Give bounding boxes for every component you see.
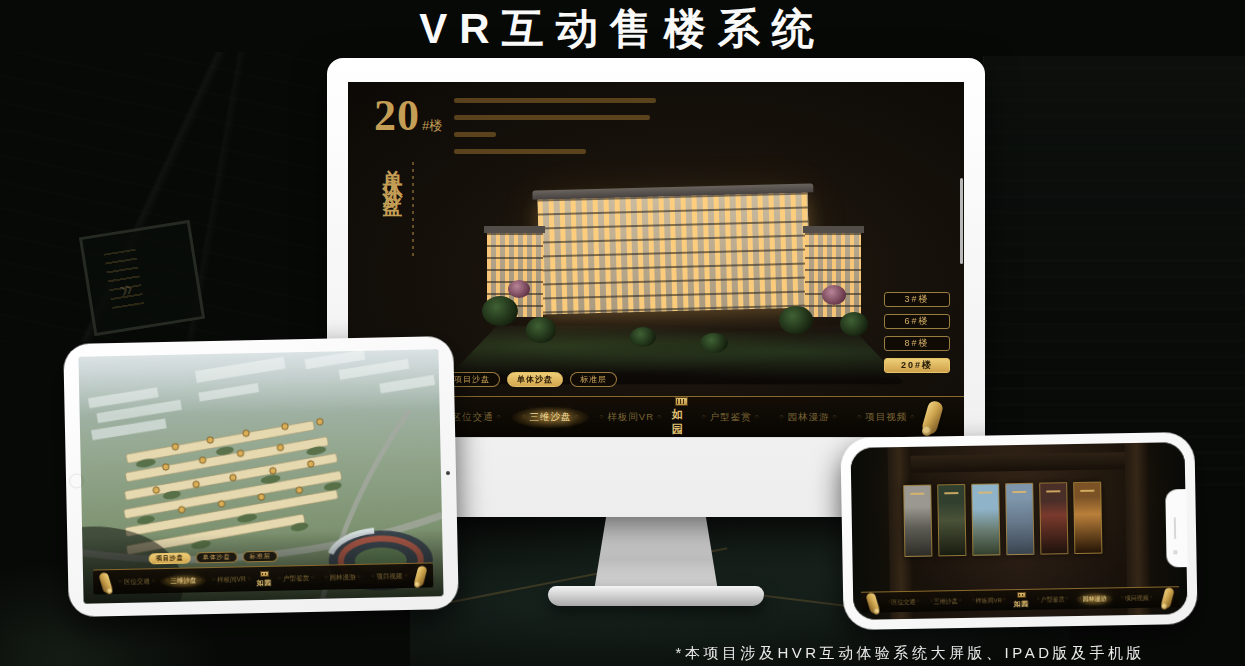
vertical-subtitle-decor: [412, 162, 414, 258]
brand-logo-text: 如园: [1013, 598, 1029, 608]
building-number: 20: [374, 91, 420, 140]
tree: [526, 317, 556, 343]
floor-button-20[interactable]: 20#楼: [884, 358, 950, 373]
seal-icon: [675, 397, 688, 406]
tree: [779, 306, 813, 334]
brand-logo-text: 如园: [256, 577, 272, 587]
tree: [700, 333, 728, 353]
phone-device: 区位交通 三维沙盘 样板间VR 如园 户型鉴赏 园林漫游 项目视频: [840, 432, 1197, 630]
ipad-screen: 项目沙盘 单体沙盘 标准层 区位交通 三维沙盘 样板间VR 如园 户型鉴赏 园林…: [78, 349, 443, 603]
nav-item-3d-sandbox[interactable]: 三维沙盘: [512, 407, 590, 428]
tab-standard-floor[interactable]: 标准层: [243, 551, 278, 563]
nav-item-model-room-vr[interactable]: 样板间VR: [207, 573, 256, 587]
nav-item-model-room-vr[interactable]: 样板间VR: [589, 407, 671, 428]
scroll-icon[interactable]: [868, 592, 878, 613]
monitor-stand-base: [548, 586, 764, 606]
footnote: *本项目涉及HVR互动体验系统大屏版、IPAD版及手机版: [676, 644, 1145, 663]
pano-thumbnail-strip: [903, 482, 1102, 557]
monitor-stand-neck: [594, 515, 718, 591]
phone-notch: [1165, 489, 1187, 567]
nav-item-floorplan[interactable]: 户型鉴赏: [692, 407, 770, 428]
nav-item-floorplan[interactable]: 户型鉴赏: [273, 571, 319, 585]
tab-single-sandbox[interactable]: 单体沙盘: [196, 552, 238, 564]
scroll-icon[interactable]: [416, 565, 426, 586]
brand-logo-text: 如园: [672, 407, 692, 437]
background-picture-frame: [79, 220, 205, 336]
tab-standard-floor[interactable]: 标准层: [570, 372, 617, 387]
nav-item-3d-sandbox[interactable]: 三维沙盘: [927, 594, 965, 608]
nav-item-garden-tour[interactable]: 园林漫游: [320, 570, 366, 584]
nav-item-location-traffic[interactable]: 区位交通: [885, 595, 923, 609]
seal-icon: [260, 570, 269, 576]
nav-item-garden-tour[interactable]: 园林漫游: [1076, 592, 1114, 606]
vertical-title: 单体沙盘: [380, 154, 407, 190]
floor-button-group: 3#楼 6#楼 8#楼 20#楼: [884, 292, 950, 373]
nav-item-floorplan[interactable]: 户型鉴赏: [1034, 593, 1072, 607]
sandbox-tab-bar: 项目沙盘 单体沙盘 标准层: [444, 372, 617, 387]
tab-project-sandbox[interactable]: 项目沙盘: [149, 552, 191, 564]
background-photo-texture: [983, 56, 1245, 486]
stage: » VR互动售楼系统 20#楼 单体沙盘: [0, 0, 1245, 666]
nav-item-location-traffic[interactable]: 区位交通: [114, 575, 160, 589]
scrollbar[interactable]: [960, 178, 963, 264]
tab-single-sandbox[interactable]: 单体沙盘: [507, 372, 563, 387]
nav-item-3d-sandbox[interactable]: 三维沙盘: [160, 574, 206, 588]
camera-icon: [446, 471, 450, 475]
ipad-device: 项目沙盘 单体沙盘 标准层 区位交通 三维沙盘 样板间VR 如园 户型鉴赏 园林…: [63, 336, 459, 617]
pano-thumbnail[interactable]: [937, 484, 966, 556]
building-render[interactable]: [456, 144, 892, 406]
brand-logo[interactable]: 如园: [1013, 591, 1029, 608]
seal-icon: [1017, 591, 1026, 597]
nav-item-project-video[interactable]: 项目视频: [366, 569, 412, 583]
floor-button-3[interactable]: 3#楼: [884, 292, 950, 307]
building-number-suffix: #楼: [422, 118, 442, 133]
nav-item-project-video[interactable]: 项目视频: [847, 407, 925, 428]
nav-item-project-video[interactable]: 项目视频: [1118, 591, 1156, 605]
scroll-icon[interactable]: [1163, 587, 1173, 608]
building-main-block: [537, 193, 810, 315]
floor-button-6[interactable]: 6#楼: [884, 314, 950, 329]
pano-thumbnail[interactable]: [903, 485, 932, 557]
nav-item-model-room-vr[interactable]: 样板间VR: [969, 594, 1009, 608]
tree: [840, 312, 868, 336]
scroll-icon[interactable]: [925, 401, 940, 434]
page-title: VR互动售楼系统: [0, 1, 1245, 57]
floor-button-8[interactable]: 8#楼: [884, 336, 950, 351]
building-headline: 20#楼: [374, 94, 442, 138]
brand-logo[interactable]: 如园: [672, 397, 692, 437]
pano-thumbnail[interactable]: [1039, 482, 1068, 554]
phone-screen: 区位交通 三维沙盘 样板间VR 如园 户型鉴赏 园林漫游 项目视频: [851, 442, 1188, 620]
pano-thumbnail[interactable]: [971, 483, 1000, 555]
pano-thumbnail[interactable]: [1073, 482, 1102, 554]
pano-thumbnail[interactable]: [1005, 483, 1034, 555]
brand-logo[interactable]: 如园: [256, 570, 272, 587]
nav-item-garden-tour[interactable]: 园林漫游: [770, 407, 848, 428]
tree: [482, 296, 518, 326]
scroll-icon[interactable]: [101, 572, 111, 593]
